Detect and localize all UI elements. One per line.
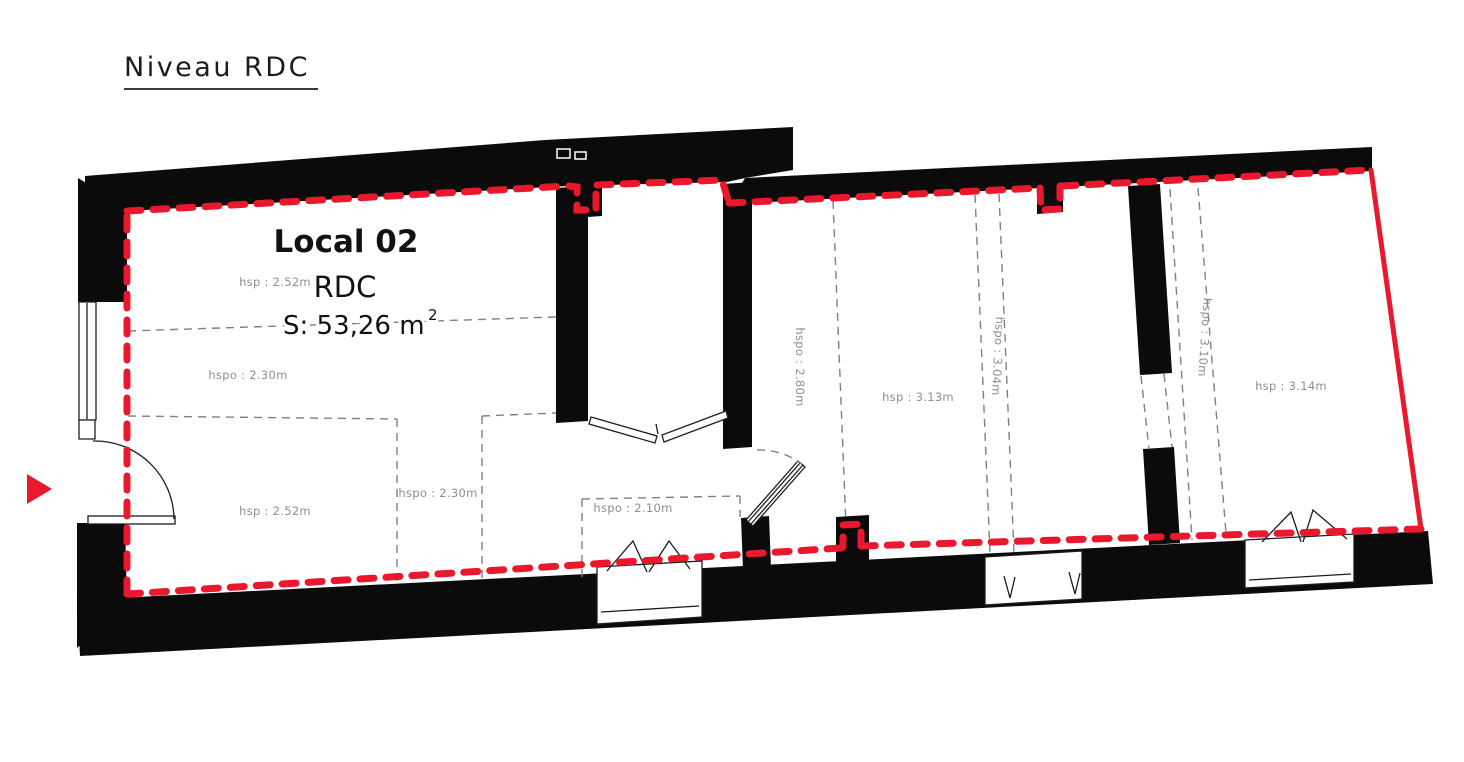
wall-opening-dashes — [1141, 374, 1172, 449]
window-bottom-2 — [985, 551, 1082, 605]
double-door-leaf-left — [589, 417, 657, 443]
label-hsp-left-upper: hsp : 2.52m — [239, 275, 311, 289]
label-hsp-middle: hsp : 3.13m — [882, 390, 954, 404]
wall-corridor-left — [556, 186, 588, 423]
interior-door-leaf — [746, 461, 805, 526]
window-left-sill — [79, 420, 95, 439]
zone-line-left-lower — [128, 413, 556, 584]
zone-line-corridor — [833, 201, 846, 527]
double-door-center-mark — [656, 424, 658, 434]
interior-door-swing-arc — [757, 450, 802, 464]
entrance-door-swing-arc — [93, 441, 174, 519]
wall-middle-upper — [1128, 184, 1172, 375]
entrance-door-leaf — [88, 516, 175, 524]
wall-door-pillar — [741, 516, 771, 570]
local-name: Local 02 — [274, 224, 419, 260]
floor-plan-page: Niveau RDC — [0, 0, 1464, 762]
local-area: S: 53,26 m — [283, 311, 425, 341]
wall-middle-lower — [1143, 447, 1180, 545]
label-hsp-right: hsp : 3.14m — [1255, 379, 1327, 393]
label-hspo-middle: hspo : 3.04m — [989, 316, 1007, 396]
doors — [88, 411, 805, 526]
label-hspo-entry: hspo : 2.10m — [593, 501, 672, 515]
label-hsp-left-lower: hsp : 2.52m — [239, 504, 311, 518]
walls — [77, 127, 1433, 656]
label-hspo-left-upper: hspo : 2.30m — [208, 368, 287, 382]
local-level: RDC — [314, 270, 377, 304]
wall-top-left — [85, 127, 793, 214]
double-door-leaf-right — [662, 411, 728, 442]
label-hspo-left-lower: hspo : 2.30m — [398, 486, 477, 500]
interior-door-leaf-line-1 — [748, 463, 800, 522]
boundary-right — [1371, 170, 1421, 529]
interior-door-leaf-line-2 — [751, 465, 803, 524]
label-hspo-right: hspo : 3.10m — [1195, 297, 1214, 377]
local-area-exponent: 2 — [428, 306, 438, 324]
entrance-arrow-icon — [27, 474, 52, 504]
floor-plan-drawing: Local 02 RDC S: 53,26 m 2 hsp : 2.52m hs… — [0, 0, 1464, 762]
label-hspo-corridor: hspo : 2.80m — [793, 327, 807, 406]
wall-corridor-right — [723, 182, 752, 449]
